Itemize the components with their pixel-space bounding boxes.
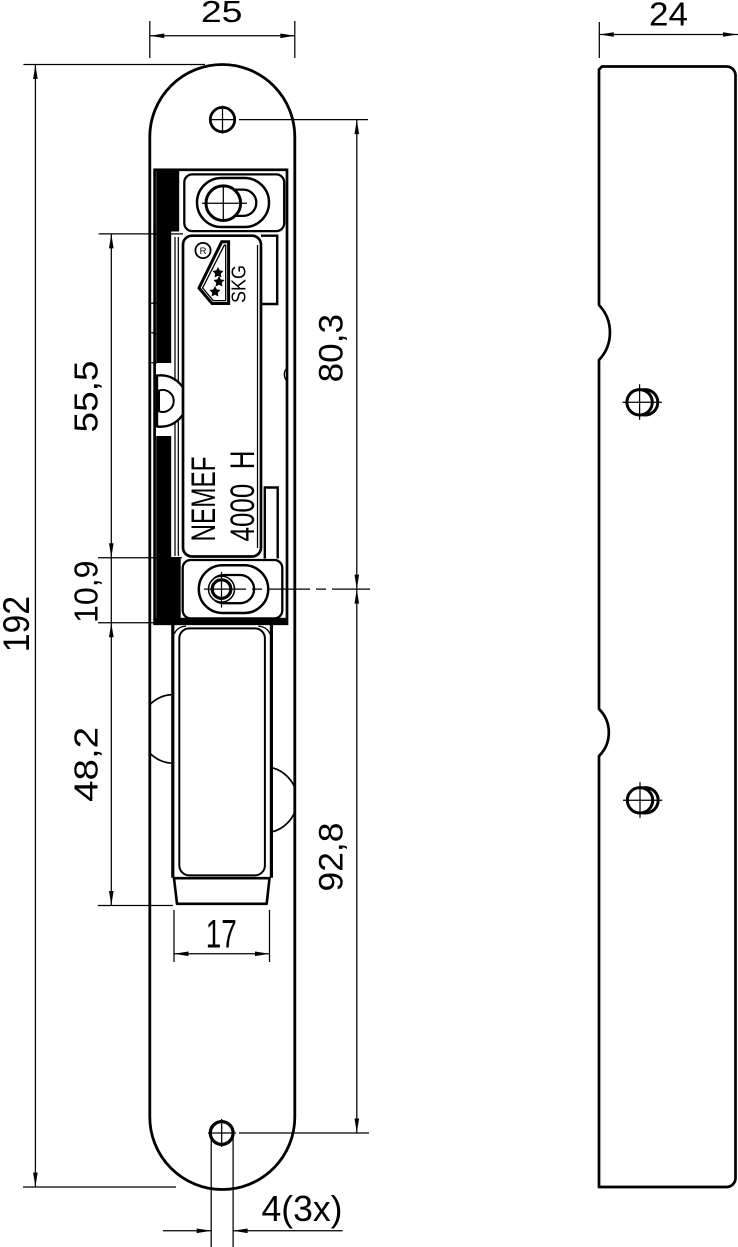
svg-text:55,5: 55,5	[68, 361, 105, 433]
svg-text:48,2: 48,2	[68, 727, 105, 802]
svg-text:24: 24	[649, 0, 688, 32]
svg-text:NEMEF: NEMEF	[185, 457, 223, 542]
svg-text:192: 192	[0, 596, 37, 652]
svg-text:SKG: SKG	[229, 265, 251, 303]
svg-text:92,8: 92,8	[313, 823, 351, 892]
svg-text:4(3x): 4(3x)	[262, 1188, 343, 1229]
svg-text:R: R	[200, 246, 207, 257]
svg-text:4000 H: 4000 H	[224, 451, 262, 542]
svg-text:10,9: 10,9	[68, 560, 105, 623]
svg-text:25: 25	[201, 0, 243, 29]
svg-text:17: 17	[206, 913, 237, 957]
svg-text:80,3: 80,3	[313, 314, 351, 382]
